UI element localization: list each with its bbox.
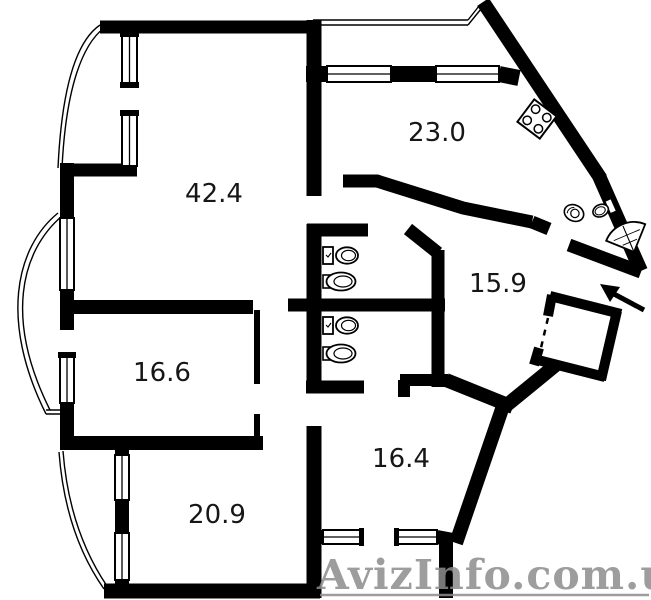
room-area-label-kitchen: 23.0: [408, 118, 466, 148]
room-area-label-bottom: 20.9: [188, 500, 246, 530]
wall: [532, 222, 549, 229]
floor-plan: 42.4 23.0 15.9 16.6 16.4 20.9 AvizInfo.c…: [0, 0, 651, 600]
room-area-label-living: 42.4: [185, 179, 243, 209]
toilet-icon: [323, 317, 358, 334]
window-symbol: [120, 31, 139, 88]
balcony-curves: [18, 6, 481, 589]
window-symbol: [115, 533, 129, 580]
room-area-label-left: 16.6: [133, 358, 191, 388]
window-symbol: [60, 218, 74, 290]
balcony-curve-mid-left-inner: [23, 216, 62, 410]
dashed-opening: [540, 318, 548, 352]
balcony-curve-top-left-inner: [62, 28, 104, 168]
toilet-icon: [323, 247, 358, 264]
wall: [343, 181, 532, 222]
sink-icon: [323, 273, 356, 291]
window-symbol: [436, 66, 499, 82]
floor-plan-canvas: 42.4 23.0 15.9 16.6 16.4 20.9 AvizInfo.c…: [0, 0, 651, 600]
sink-icon: [323, 345, 356, 363]
room-area-label-hallway: 15.9: [469, 269, 527, 299]
window-symbol: [394, 528, 437, 546]
window-symbol: [327, 66, 391, 82]
balcony-curve-top-left: [58, 25, 100, 168]
window-symbol: [120, 110, 139, 166]
window-symbol: [323, 528, 364, 546]
room-area-label-center: 16.4: [372, 444, 430, 474]
window-symbol: [58, 352, 76, 403]
watermark: AvizInfo.com.ua: [316, 551, 651, 599]
window-symbol: [115, 455, 129, 500]
sink-icon: [562, 202, 587, 225]
balcony-curve-bottom-left-inner: [63, 451, 107, 586]
wall-layer: [60, 2, 641, 598]
fixture-layer: [323, 99, 645, 362]
wall: [408, 229, 438, 253]
watermark-text: AvizInfo.com.ua: [316, 551, 651, 599]
